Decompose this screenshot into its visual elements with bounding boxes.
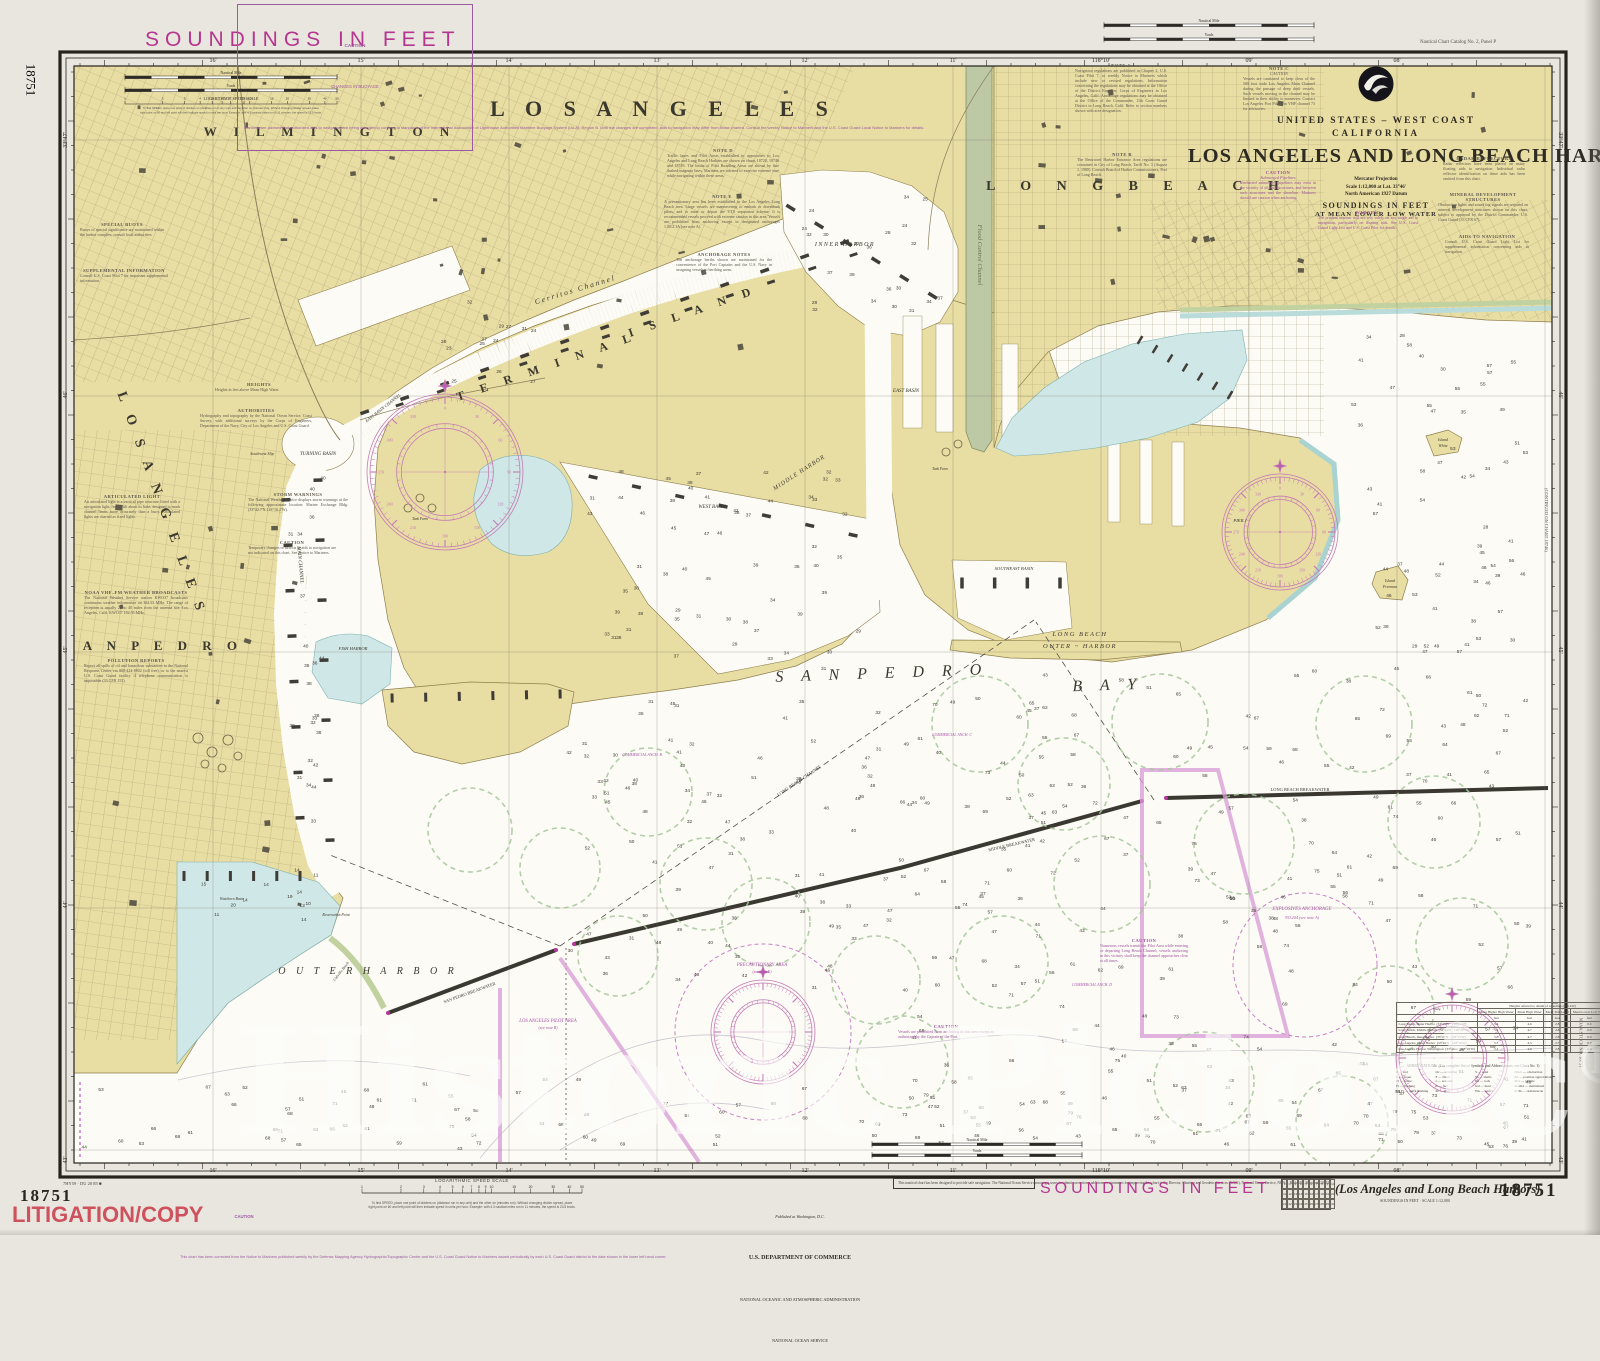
svg-text:14: 14 bbox=[297, 890, 303, 896]
svg-text:31: 31 bbox=[590, 495, 596, 501]
svg-text:51: 51 bbox=[1035, 978, 1041, 984]
svg-text:31: 31 bbox=[582, 741, 588, 747]
svg-text:61: 61 bbox=[1347, 865, 1353, 871]
svg-text:55: 55 bbox=[1294, 673, 1300, 679]
svg-text:34: 34 bbox=[1485, 466, 1491, 472]
svg-text:48: 48 bbox=[642, 809, 648, 815]
changes-in-buoyage-caution-box: CAUTION CHANGES IN BUOYAGE Mariners are … bbox=[237, 4, 473, 151]
bottom-caution-note: CAUTION This chart has been corrected fr… bbox=[180, 1178, 308, 1278]
svg-text:54: 54 bbox=[1243, 746, 1249, 752]
svg-text:48: 48 bbox=[618, 469, 624, 475]
svg-text:64: 64 bbox=[1332, 850, 1338, 856]
svg-text:47: 47 bbox=[1123, 815, 1129, 821]
svg-text:32: 32 bbox=[806, 232, 812, 238]
svg-text:35: 35 bbox=[304, 663, 310, 669]
svg-text:60: 60 bbox=[920, 796, 926, 802]
svg-text:Island: Island bbox=[1384, 578, 1396, 583]
svg-text:45: 45 bbox=[706, 576, 712, 582]
svg-text:40: 40 bbox=[568, 1185, 572, 1189]
svg-text:32: 32 bbox=[826, 470, 832, 476]
svg-text:42: 42 bbox=[1367, 853, 1373, 859]
svg-text:24: 24 bbox=[902, 223, 908, 229]
publisher-block: Published at Washington, D.C. U.S. DEPAR… bbox=[733, 1178, 867, 1361]
svg-text:55: 55 bbox=[1330, 884, 1336, 890]
svg-text:150: 150 bbox=[1299, 568, 1305, 573]
svg-text:63: 63 bbox=[1052, 809, 1058, 815]
svg-text:66: 66 bbox=[1451, 801, 1457, 807]
bottom-right-subtitle: SOUNDINGS IN FEET · SCALE 1:12,000 bbox=[1355, 1198, 1475, 1203]
svg-text:68: 68 bbox=[1292, 747, 1298, 753]
svg-text:33: 33 bbox=[311, 818, 317, 824]
svg-text:28: 28 bbox=[1483, 525, 1489, 531]
svg-text:118°10': 118°10' bbox=[1092, 57, 1110, 64]
svg-text:73: 73 bbox=[1194, 878, 1200, 884]
svg-text:16': 16' bbox=[209, 1168, 216, 1174]
svg-text:48: 48 bbox=[1273, 929, 1279, 935]
svg-text:66: 66 bbox=[1508, 985, 1514, 991]
svg-text:72: 72 bbox=[1050, 871, 1056, 877]
svg-text:29: 29 bbox=[732, 641, 738, 647]
caution-box-title: CAUTION bbox=[244, 43, 466, 48]
svg-text:Freeman: Freeman bbox=[1382, 584, 1397, 589]
svg-text:O U T E R H A R B O R: O U T E R H A R B O R bbox=[278, 966, 458, 977]
svg-text:Yards: Yards bbox=[1205, 33, 1214, 37]
svg-text:57: 57 bbox=[1487, 370, 1493, 376]
svg-text:49: 49 bbox=[924, 800, 930, 806]
svg-text:54: 54 bbox=[1470, 474, 1476, 480]
svg-text:31: 31 bbox=[629, 936, 635, 942]
svg-text:42: 42 bbox=[742, 973, 748, 979]
svg-text:36: 36 bbox=[820, 899, 826, 905]
svg-text:66: 66 bbox=[1426, 675, 1432, 681]
svg-text:31: 31 bbox=[696, 613, 702, 619]
svg-text:38: 38 bbox=[316, 730, 322, 736]
svg-text:49: 49 bbox=[1499, 407, 1505, 413]
svg-text:46: 46 bbox=[717, 530, 723, 536]
svg-text:Reservation Point: Reservation Point bbox=[321, 913, 350, 917]
svg-text:0: 0 bbox=[1279, 486, 1281, 491]
svg-text:6: 6 bbox=[462, 1185, 464, 1189]
svg-text:44: 44 bbox=[311, 784, 317, 790]
svg-text:62: 62 bbox=[1098, 968, 1104, 974]
svg-text:27: 27 bbox=[530, 379, 536, 385]
svg-text:46: 46 bbox=[1386, 593, 1392, 599]
svg-text:4: 4 bbox=[439, 1185, 441, 1189]
svg-text:64: 64 bbox=[915, 891, 921, 897]
svg-text:39: 39 bbox=[753, 562, 759, 568]
svg-text:52: 52 bbox=[1503, 728, 1509, 734]
svg-text:PIER J: PIER J bbox=[1232, 518, 1247, 523]
svg-text:53: 53 bbox=[1450, 446, 1456, 452]
svg-text:32: 32 bbox=[842, 512, 848, 518]
svg-text:EXPLOSIVES ANCHORAGE: EXPLOSIVES ANCHORAGE bbox=[1271, 907, 1331, 912]
svg-text:73: 73 bbox=[985, 770, 991, 776]
svg-text:24: 24 bbox=[802, 226, 808, 232]
svg-text:60: 60 bbox=[1016, 714, 1022, 720]
svg-text:32: 32 bbox=[875, 710, 881, 716]
svg-text:34: 34 bbox=[675, 977, 681, 983]
svg-text:50: 50 bbox=[899, 857, 905, 863]
svg-text:67: 67 bbox=[1074, 732, 1080, 738]
svg-text:47: 47 bbox=[1430, 409, 1436, 415]
svg-text:Tank Farm: Tank Farm bbox=[412, 517, 428, 521]
svg-text:46: 46 bbox=[1279, 760, 1285, 766]
svg-text:30: 30 bbox=[1300, 491, 1304, 496]
svg-text:33: 33 bbox=[592, 794, 598, 800]
svg-text:50: 50 bbox=[629, 839, 635, 845]
svg-text:1: 1 bbox=[361, 1185, 363, 1189]
svg-text:71: 71 bbox=[1036, 934, 1042, 940]
svg-text:COMMERCIAL ANCH. B: COMMERCIAL ANCH. B bbox=[622, 753, 662, 757]
svg-text:45: 45 bbox=[1026, 708, 1032, 714]
svg-text:42: 42 bbox=[1349, 765, 1355, 771]
svg-text:43: 43 bbox=[587, 511, 593, 517]
svg-text:39: 39 bbox=[1495, 573, 1501, 579]
svg-text:43: 43 bbox=[680, 763, 686, 769]
svg-text:48: 48 bbox=[1404, 569, 1410, 575]
svg-text:30: 30 bbox=[827, 649, 833, 655]
svg-text:40: 40 bbox=[320, 476, 326, 482]
svg-text:42: 42 bbox=[566, 750, 572, 756]
svg-text:34: 34 bbox=[685, 788, 691, 794]
svg-text:55: 55 bbox=[1416, 800, 1422, 806]
svg-text:46: 46 bbox=[1280, 894, 1286, 900]
svg-text:5: 5 bbox=[452, 1185, 454, 1189]
svg-text:46: 46 bbox=[1520, 571, 1526, 577]
svg-text:32: 32 bbox=[717, 793, 723, 799]
svg-text:Tank Farm: Tank Farm bbox=[932, 467, 948, 471]
svg-text:75: 75 bbox=[1191, 841, 1197, 847]
svg-text:43: 43 bbox=[1367, 487, 1373, 493]
svg-text:210: 210 bbox=[1255, 568, 1261, 573]
svg-text:39: 39 bbox=[1159, 976, 1165, 982]
svg-text:FISH HARBOR: FISH HARBOR bbox=[338, 646, 368, 651]
svg-text:49: 49 bbox=[1187, 745, 1193, 751]
svg-text:35: 35 bbox=[735, 954, 741, 960]
svg-text:55: 55 bbox=[1407, 738, 1413, 744]
svg-text:29: 29 bbox=[675, 608, 681, 614]
svg-text:66: 66 bbox=[151, 1126, 157, 1132]
scanned-nautical-chart-page: { "page": { "soundings_top": "SOUNDINGS … bbox=[0, 0, 1600, 1235]
svg-text:20: 20 bbox=[529, 1185, 533, 1189]
svg-text:47: 47 bbox=[1422, 649, 1428, 655]
svg-text:55: 55 bbox=[1511, 360, 1517, 366]
svg-text:28: 28 bbox=[1399, 333, 1405, 339]
svg-text:40: 40 bbox=[903, 987, 909, 993]
svg-text:35: 35 bbox=[794, 564, 800, 570]
svg-text:71: 71 bbox=[984, 881, 990, 887]
svg-text:47: 47 bbox=[1437, 460, 1443, 466]
svg-text:42: 42 bbox=[1040, 839, 1046, 845]
svg-text:67: 67 bbox=[205, 1084, 211, 1090]
svg-text:10: 10 bbox=[305, 901, 311, 907]
svg-text:41: 41 bbox=[1287, 876, 1293, 882]
title-projection: Mercator ProjectionScale 1:12,000 at Lat… bbox=[1188, 176, 1564, 199]
svg-text:14: 14 bbox=[263, 882, 269, 888]
svg-text:Watchorn Basin: Watchorn Basin bbox=[220, 897, 244, 901]
svg-text:44: 44 bbox=[1035, 922, 1041, 928]
svg-text:38: 38 bbox=[849, 272, 855, 278]
svg-text:40: 40 bbox=[303, 644, 309, 650]
svg-text:36: 36 bbox=[309, 514, 315, 520]
svg-text:37: 37 bbox=[1029, 815, 1035, 821]
svg-text:67: 67 bbox=[1104, 836, 1110, 842]
svg-text:46: 46 bbox=[757, 756, 763, 762]
svg-text:66: 66 bbox=[900, 800, 906, 806]
svg-text:41: 41 bbox=[676, 749, 682, 755]
svg-text:42: 42 bbox=[1523, 698, 1529, 704]
svg-text:SOUTHEAST BASIN: SOUTHEAST BASIN bbox=[995, 566, 1035, 571]
svg-text:51: 51 bbox=[1146, 685, 1152, 691]
svg-text:28: 28 bbox=[885, 230, 891, 236]
svg-text:44: 44 bbox=[82, 1145, 88, 1151]
svg-text:42: 42 bbox=[603, 778, 609, 784]
svg-text:40: 40 bbox=[688, 486, 694, 492]
svg-text:39: 39 bbox=[1477, 543, 1483, 549]
svg-text:39: 39 bbox=[1383, 624, 1389, 630]
svg-text:52: 52 bbox=[1006, 796, 1012, 802]
svg-text:34: 34 bbox=[926, 299, 932, 305]
svg-text:44: 44 bbox=[907, 802, 913, 808]
svg-text:58: 58 bbox=[941, 879, 947, 885]
svg-text:58: 58 bbox=[1407, 342, 1413, 348]
svg-text:180: 180 bbox=[442, 534, 448, 539]
svg-text:51: 51 bbox=[1515, 440, 1521, 446]
svg-text:36: 36 bbox=[886, 286, 892, 292]
svg-text:90: 90 bbox=[507, 470, 511, 475]
svg-text:35: 35 bbox=[836, 924, 842, 930]
svg-text:40: 40 bbox=[682, 567, 688, 573]
svg-text:36: 36 bbox=[1017, 896, 1023, 902]
svg-text:44: 44 bbox=[319, 655, 325, 661]
svg-text:37: 37 bbox=[1406, 772, 1412, 778]
svg-text:68: 68 bbox=[981, 958, 987, 964]
svg-text:46: 46 bbox=[701, 799, 707, 805]
svg-text:60: 60 bbox=[1316, 508, 1320, 513]
svg-text:23: 23 bbox=[446, 346, 452, 352]
svg-text:30: 30 bbox=[634, 586, 640, 592]
svg-text:38: 38 bbox=[306, 681, 312, 687]
svg-text:39: 39 bbox=[822, 590, 828, 596]
svg-text:2: 2 bbox=[400, 1185, 402, 1189]
svg-text:69: 69 bbox=[983, 809, 989, 815]
svg-text:46: 46 bbox=[1431, 837, 1437, 843]
svg-text:44: 44 bbox=[1439, 561, 1445, 567]
caution-box-body: Mariners are advised that authorized aid… bbox=[244, 125, 466, 130]
svg-text:40: 40 bbox=[708, 940, 714, 946]
svg-text:62: 62 bbox=[1474, 713, 1480, 719]
title-soundings: SOUNDINGS IN FEET bbox=[1188, 201, 1564, 210]
svg-text:52: 52 bbox=[1435, 573, 1441, 579]
svg-text:57: 57 bbox=[1497, 966, 1503, 972]
svg-text:37: 37 bbox=[300, 593, 306, 599]
svg-text:48: 48 bbox=[656, 940, 662, 946]
svg-text:270: 270 bbox=[1233, 530, 1239, 535]
svg-text:35: 35 bbox=[623, 588, 629, 594]
svg-text:69: 69 bbox=[1118, 964, 1124, 970]
svg-text:36: 36 bbox=[312, 661, 318, 667]
svg-text:60: 60 bbox=[935, 983, 941, 989]
svg-text:42: 42 bbox=[763, 470, 769, 476]
svg-text:46: 46 bbox=[640, 511, 646, 517]
svg-text:40: 40 bbox=[310, 487, 316, 493]
svg-text:44: 44 bbox=[1383, 566, 1389, 572]
svg-text:41: 41 bbox=[819, 872, 825, 878]
svg-text:30: 30 bbox=[892, 304, 898, 310]
svg-text:71: 71 bbox=[1473, 904, 1479, 910]
svg-text:35: 35 bbox=[1461, 409, 1467, 415]
svg-text:52: 52 bbox=[1074, 857, 1080, 863]
svg-text:24: 24 bbox=[531, 328, 537, 334]
svg-text:45: 45 bbox=[979, 894, 985, 900]
svg-text:58: 58 bbox=[1257, 944, 1263, 950]
svg-text:45: 45 bbox=[1208, 744, 1214, 750]
svg-text:330: 330 bbox=[1255, 491, 1261, 496]
svg-text:52: 52 bbox=[901, 874, 907, 880]
svg-text:65: 65 bbox=[1484, 769, 1490, 775]
svg-text:30: 30 bbox=[475, 414, 479, 419]
bottom-right-chart-number: 18751 bbox=[1500, 1180, 1558, 1202]
svg-text:43: 43 bbox=[1412, 964, 1418, 970]
svg-text:33: 33 bbox=[846, 904, 852, 910]
svg-text:S A N P E D R O: S A N P E D R O bbox=[61, 638, 243, 653]
svg-text:57: 57 bbox=[1498, 609, 1504, 615]
svg-text:30: 30 bbox=[568, 948, 574, 954]
svg-text:52: 52 bbox=[811, 739, 817, 745]
svg-text:49: 49 bbox=[904, 741, 910, 747]
svg-text:37: 37 bbox=[1034, 706, 1040, 712]
svg-text:39: 39 bbox=[615, 609, 621, 615]
svg-text:57: 57 bbox=[1487, 363, 1493, 369]
svg-text:75: 75 bbox=[1314, 868, 1320, 874]
svg-text:PRECAUTIONARY AREA: PRECAUTIONARY AREA bbox=[736, 963, 788, 968]
svg-text:30: 30 bbox=[823, 232, 829, 238]
svg-text:42: 42 bbox=[313, 763, 319, 769]
svg-text:54: 54 bbox=[1420, 497, 1426, 503]
svg-text:58: 58 bbox=[1223, 919, 1229, 925]
svg-text:44': 44' bbox=[63, 901, 69, 908]
svg-text:8: 8 bbox=[478, 1185, 480, 1189]
svg-text:65: 65 bbox=[1176, 691, 1182, 697]
svg-text:41: 41 bbox=[1505, 786, 1511, 792]
svg-text:Flood Control Channel: Flood Control Channel bbox=[976, 224, 983, 286]
bottom-right-title: (Los Angeles and Long Beach Harbors) bbox=[1335, 1182, 1495, 1197]
svg-text:65: 65 bbox=[1029, 701, 1035, 707]
svg-text:32: 32 bbox=[812, 307, 818, 313]
svg-text:11: 11 bbox=[214, 912, 219, 918]
svg-text:61: 61 bbox=[1467, 690, 1473, 696]
svg-text:25: 25 bbox=[922, 197, 928, 203]
svg-text:57: 57 bbox=[1457, 649, 1463, 655]
svg-text:50: 50 bbox=[642, 913, 648, 919]
svg-text:38: 38 bbox=[743, 619, 749, 625]
svg-text:47: 47 bbox=[1211, 871, 1217, 877]
svg-text:49: 49 bbox=[1378, 877, 1384, 883]
svg-text:31: 31 bbox=[909, 308, 915, 314]
svg-text:33°47': 33°47' bbox=[62, 132, 69, 147]
svg-text:60: 60 bbox=[1438, 816, 1444, 822]
svg-text:52: 52 bbox=[1067, 782, 1073, 788]
svg-text:56: 56 bbox=[1049, 970, 1055, 976]
svg-text:50: 50 bbox=[1230, 896, 1236, 902]
svg-text:45': 45' bbox=[63, 646, 69, 653]
svg-text:36: 36 bbox=[1358, 422, 1364, 428]
svg-text:40: 40 bbox=[1419, 354, 1425, 360]
svg-text:41: 41 bbox=[1447, 772, 1453, 778]
svg-text:49: 49 bbox=[1434, 644, 1440, 650]
svg-text:41: 41 bbox=[668, 737, 674, 743]
svg-text:61: 61 bbox=[918, 736, 924, 742]
svg-text:L O S A N G E L E S: L O S A N G E L E S bbox=[490, 96, 836, 121]
svg-text:44: 44 bbox=[1100, 906, 1106, 912]
svg-text:67: 67 bbox=[924, 867, 930, 873]
svg-text:61: 61 bbox=[188, 1130, 194, 1136]
svg-text:58: 58 bbox=[1070, 752, 1076, 758]
svg-text:52: 52 bbox=[585, 845, 591, 851]
svg-text:47: 47 bbox=[586, 931, 592, 937]
svg-text:38: 38 bbox=[1471, 619, 1477, 625]
svg-text:46': 46' bbox=[63, 391, 69, 398]
svg-text:28: 28 bbox=[441, 339, 447, 345]
svg-text:44: 44 bbox=[725, 943, 731, 949]
svg-text:Island: Island bbox=[1437, 437, 1449, 442]
svg-text:41: 41 bbox=[652, 860, 658, 866]
corrections-grid: 1234567891011121314151617181920212223242… bbox=[1281, 1178, 1331, 1210]
svg-text:70: 70 bbox=[932, 702, 938, 708]
svg-text:43: 43 bbox=[1079, 928, 1085, 934]
svg-text:47: 47 bbox=[1390, 385, 1396, 391]
svg-text:LONG BEACH BREAKWATER: LONG BEACH BREAKWATER bbox=[1271, 787, 1330, 792]
svg-text:34: 34 bbox=[871, 299, 877, 305]
svg-text:54: 54 bbox=[1352, 982, 1358, 988]
back-channel-water bbox=[864, 246, 893, 600]
svg-text:TURNING BASIN: TURNING BASIN bbox=[300, 452, 337, 457]
svg-text:31: 31 bbox=[522, 326, 528, 332]
svg-text:33: 33 bbox=[604, 631, 610, 637]
svg-text:30: 30 bbox=[896, 285, 902, 291]
svg-text:49: 49 bbox=[677, 927, 683, 933]
svg-text:31: 31 bbox=[297, 775, 303, 781]
svg-text:32: 32 bbox=[867, 774, 873, 780]
svg-text:120: 120 bbox=[497, 502, 503, 507]
svg-text:36: 36 bbox=[638, 711, 644, 717]
svg-text:70: 70 bbox=[1422, 779, 1428, 785]
svg-text:31: 31 bbox=[876, 747, 882, 753]
svg-text:71: 71 bbox=[1368, 901, 1374, 907]
svg-text:INNER HARBOR: INNER HARBOR bbox=[814, 242, 875, 248]
svg-text:32: 32 bbox=[584, 754, 590, 760]
svg-text:47: 47 bbox=[704, 531, 710, 537]
svg-text:60: 60 bbox=[1007, 868, 1013, 874]
svg-text:51: 51 bbox=[751, 775, 757, 781]
svg-text:37: 37 bbox=[883, 876, 889, 882]
svg-text:43: 43 bbox=[604, 955, 610, 961]
svg-text:58: 58 bbox=[1202, 773, 1208, 779]
svg-text:15: 15 bbox=[201, 882, 207, 888]
svg-text:35: 35 bbox=[674, 616, 680, 622]
svg-text:19: 19 bbox=[287, 894, 293, 900]
svg-text:45: 45 bbox=[666, 476, 672, 482]
svg-text:42: 42 bbox=[1461, 474, 1467, 480]
svg-text:31: 31 bbox=[288, 532, 294, 538]
svg-text:40: 40 bbox=[633, 778, 639, 784]
svg-text:47: 47 bbox=[725, 820, 731, 826]
svg-text:60: 60 bbox=[118, 1139, 124, 1145]
catalog-note: Nautical Chart Catalog No. 2, Panel P bbox=[1420, 40, 1496, 45]
svg-text:16': 16' bbox=[209, 58, 216, 64]
svg-text:56: 56 bbox=[932, 955, 938, 961]
svg-text:57: 57 bbox=[1496, 837, 1502, 843]
